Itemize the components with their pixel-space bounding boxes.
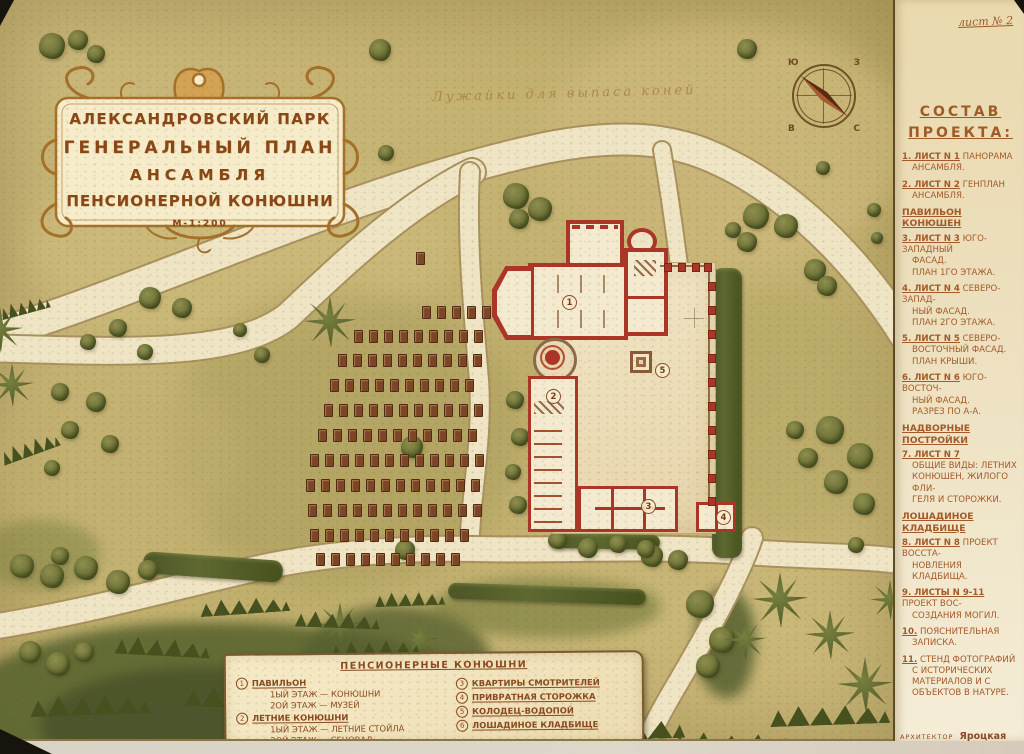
sidebar-item-lead: 9. ЛИСТЫ N 9-11 [902, 588, 984, 598]
grave-marker [429, 330, 438, 343]
sidebar-item-line: 3. ЛИСТ N 3 ЮГО-ЗАПАДНЫЙ [902, 234, 1020, 257]
tree [106, 570, 130, 594]
legend-item: 6ЛОШАДИНОЕ КЛАДБИЩЕ [456, 718, 636, 732]
grave-marker [370, 529, 379, 542]
grave-marker [330, 379, 339, 392]
grave-marker [441, 479, 450, 492]
grave-marker [385, 529, 394, 542]
grave-marker [399, 404, 408, 417]
legend-item-label: КВАРТИРЫ СМОТРИТЕЛЕЙ [472, 677, 600, 688]
grave-marker [423, 429, 432, 442]
park-path [0, 548, 893, 628]
sidebar-item-line: 9. ЛИСТЫ N 9-11 ПРОЕКТ ВОС- [902, 588, 1020, 611]
tree [46, 652, 70, 676]
grave-marker [308, 504, 317, 517]
sidebar-item: 3. ЛИСТ N 3 ЮГО-ЗАПАДНЫЙФАСАД.ПЛАН 1ГО Э… [902, 234, 1020, 279]
pavilion-colonnade [536, 275, 620, 293]
grave-marker [306, 479, 315, 492]
dimension-line [694, 308, 695, 328]
legend-item: 4ПРИВРАТНАЯ СТОРОЖКА [456, 690, 636, 704]
grave-marker [361, 553, 370, 566]
compass-rose: Ю З В С [786, 58, 862, 134]
grave-marker [482, 306, 491, 319]
pavilion-central-hall [528, 263, 628, 340]
grave-marker [366, 479, 375, 492]
legend-box: ПЕНСИОНЕРНЫЕ КОНЮШНИ 1ПАВИЛЬОН1ЫЙ ЭТАЖ —… [224, 650, 645, 741]
grave-marker [465, 379, 474, 392]
sidebar-item-line: 6. ЛИСТ N 6 ЮГО-ВОСТОЧ- [902, 373, 1020, 396]
sidebar-item-continuation: ГЕЛЯ И СТОРОЖКИ. [902, 495, 1020, 506]
grave-marker [340, 454, 349, 467]
building-number-marker: 2 [546, 389, 561, 404]
tree [786, 421, 804, 439]
tree [68, 30, 88, 50]
sidebar-item-line: 10. ПОЯСНИТЕЛЬНАЯ [902, 627, 1020, 638]
fence-post [708, 306, 716, 315]
sidebar-item-continuation: КОНЮШЕН, ЖИЛОГО ФЛИ- [902, 472, 1020, 495]
grave-marker [450, 379, 459, 392]
grave-marker [422, 306, 431, 319]
legend-item-label: ПАВИЛЬОН [252, 678, 306, 688]
sidebar-item-continuation: С ИСТОРИЧЕСКИХ [902, 666, 1020, 677]
tree [737, 232, 757, 252]
tree [509, 209, 529, 229]
grave-marker [346, 553, 355, 566]
compass-label-south: Ю [788, 58, 799, 68]
legend-right-column: 3КВАРТИРЫ СМОТРИТЕЛЕЙ4ПРИВРАТНАЯ СТОРОЖК… [456, 676, 636, 734]
sidebar-item-continuation: ПЛАН 2ГО ЭТАЖА. [902, 318, 1020, 329]
fence-post [708, 497, 716, 506]
stall-partitions [534, 419, 562, 523]
fence-post [678, 263, 686, 272]
grave-marker [428, 504, 437, 517]
tree [816, 161, 830, 175]
grave-marker [339, 404, 348, 417]
grave-marker [336, 479, 345, 492]
sidebar-item-continuation: ВОСТОЧНЫЙ ФАСАД. [902, 345, 1020, 356]
legend-left-column: 1ПАВИЛЬОН1ЫЙ ЭТАЖ — КОНЮШНИ2ОЙ ЭТАЖ — МУ… [236, 676, 452, 741]
grave-marker [452, 306, 461, 319]
sidebar-item-lead: 4. ЛИСТ N 4 [902, 284, 960, 294]
grave-marker [340, 529, 349, 542]
title-line-1: АЛЕКСАНДРОВСКИЙ ПАРК [26, 110, 374, 128]
grave-marker [385, 454, 394, 467]
legend-item-label: КОЛОДЕЦ-ВОДОПОЙ [472, 705, 574, 716]
sidebar-item: 5. ЛИСТ N 5 СЕВЕРО-ВОСТОЧНЫЙ ФАСАД.ПЛАН … [902, 334, 1020, 368]
fence-post [708, 450, 716, 459]
grave-marker [413, 354, 422, 367]
title-cartouche: АЛЕКСАНДРОВСКИЙ ПАРК ГЕНЕРАЛЬНЫЙ ПЛАН АН… [26, 56, 374, 266]
grave-marker [474, 330, 483, 343]
sidebar-item-line: 11. СТЕНД ФОТОГРАФИЙ [902, 655, 1020, 666]
legend-item-number: 2 [236, 713, 248, 725]
tree [774, 214, 798, 238]
grave-marker [428, 354, 437, 367]
grave-marker [445, 454, 454, 467]
grave-marker [426, 479, 435, 492]
tree [668, 550, 688, 570]
grave-marker [429, 404, 438, 417]
cartouche-frame [26, 56, 374, 266]
sidebar-item-continuation: НЫЙ ФАСАД. [902, 396, 1020, 407]
grave-marker [384, 404, 393, 417]
grave-marker [331, 553, 340, 566]
sidebar-item: 1. ЛИСТ N 1 ПАНОРАМААНСАМБЛЯ. [902, 152, 1020, 175]
grave-marker [436, 553, 445, 566]
grave-marker [416, 252, 425, 265]
grave-marker [369, 404, 378, 417]
grave-marker [316, 553, 325, 566]
sidebar-item-lead: 10. [902, 627, 917, 637]
legend-item-sub: 2ОЙ ЭТАЖ — МУЗЕЙ [236, 698, 451, 710]
sidebar-item-line: 1. ЛИСТ N 1 ПАНОРАМА [902, 152, 1020, 163]
grave-marker [445, 529, 454, 542]
grave-marker [353, 504, 362, 517]
tree [74, 642, 94, 662]
grave-marker [376, 553, 385, 566]
grave-marker [375, 379, 384, 392]
tree [138, 560, 158, 580]
fence-post [708, 474, 716, 483]
grave-marker [437, 306, 446, 319]
architect-title: АРХИТЕКТОР [900, 733, 953, 741]
grave-marker [444, 404, 453, 417]
grave-marker [451, 553, 460, 566]
sidebar-item-lead: 5. ЛИСТ N 5 [902, 334, 960, 344]
compass-label-west: З [854, 58, 860, 68]
tree [505, 464, 521, 480]
tree [86, 392, 106, 412]
sidebar-item-lead: 3. ЛИСТ N 3 [902, 234, 960, 244]
grave-marker [390, 379, 399, 392]
legend-item-number: 5 [456, 706, 468, 718]
sidebar-item-continuation: ПЛАН КРЫШИ. [902, 357, 1020, 368]
grave-marker [458, 504, 467, 517]
grave-marker [318, 429, 327, 442]
tree [824, 470, 848, 494]
grave-marker [459, 404, 468, 417]
tree [686, 590, 714, 618]
grave-marker [400, 454, 409, 467]
compass-label-north: С [853, 124, 860, 134]
sidebar-item-line: 5. ЛИСТ N 5 СЕВЕРО- [902, 334, 1020, 345]
grave-marker [345, 379, 354, 392]
tree [61, 421, 79, 439]
pavilion-north-wing [566, 220, 624, 267]
fence-post [664, 263, 672, 272]
grave-marker [414, 330, 423, 343]
grave-marker [391, 553, 400, 566]
grave-marker [399, 330, 408, 343]
sidebar-item: 7. ЛИСТ N 7ОБЩИЕ ВИДЫ: ЛЕТНИХКОНЮШЕН, ЖИ… [902, 450, 1020, 506]
legend-item-label: ЛЕТНИЕ КОНЮШНИ [252, 712, 348, 723]
sheet-number: лист № 2 [958, 14, 1014, 29]
sidebar-item-lead: 11. [902, 655, 917, 665]
grave-marker [443, 354, 452, 367]
tree [51, 383, 69, 401]
tree [798, 448, 818, 468]
grave-marker [310, 454, 319, 467]
grave-marker [338, 354, 347, 367]
grave-marker [348, 429, 357, 442]
grave-marker [430, 454, 439, 467]
tree [867, 203, 881, 217]
tree [51, 547, 69, 565]
sidebar-item-continuation: РАЗРЕЗ ПО А-А. [902, 407, 1020, 418]
sidebar-item-continuation: ОБЩИЕ ВИДЫ: ЛЕТНИХ [902, 461, 1020, 472]
grave-marker [411, 479, 420, 492]
photo-background-strip [0, 741, 1024, 754]
grave-marker [400, 529, 409, 542]
legend-item-label: ПРИВРАТНАЯ СТОРОЖКА [472, 691, 596, 702]
grave-marker [415, 454, 424, 467]
staircase-hatch [634, 260, 656, 276]
grave-marker [323, 504, 332, 517]
sidebar-item: 6. ЛИСТ N 6 ЮГО-ВОСТОЧ-НЫЙ ФАСАД.РАЗРЕЗ … [902, 373, 1020, 418]
building-number-marker: 4 [716, 510, 731, 525]
sidebar-item-continuation: НЫЙ ФАСАД. [902, 307, 1020, 318]
grave-marker [324, 404, 333, 417]
tree [511, 428, 529, 446]
fence-post [708, 402, 716, 411]
grave-marker [393, 429, 402, 442]
tree [19, 641, 41, 663]
sidebar-item-list: 1. ЛИСТ N 1 ПАНОРАМААНСАМБЛЯ.2. ЛИСТ N 2… [902, 152, 1020, 705]
fence-post [708, 426, 716, 435]
partition-wall [628, 296, 664, 299]
grave-marker [360, 379, 369, 392]
grave-marker [475, 454, 484, 467]
grave-marker [468, 429, 477, 442]
grave-marker [471, 479, 480, 492]
grave-marker [473, 504, 482, 517]
grave-marker [456, 479, 465, 492]
tree [737, 39, 757, 59]
sidebar-item-continuation: ЗАПИСКА. [902, 638, 1020, 649]
fence-post [704, 263, 712, 272]
grave-marker [351, 479, 360, 492]
tree [44, 460, 60, 476]
grave-marker [384, 330, 393, 343]
grave-marker [363, 429, 372, 442]
grave-marker [370, 454, 379, 467]
tree [816, 416, 844, 444]
grave-marker [405, 379, 414, 392]
sidebar-item: 10. ПОЯСНИТЕЛЬНАЯЗАПИСКА. [902, 627, 1020, 650]
grave-marker [444, 330, 453, 343]
tree [743, 203, 769, 229]
sidebar-item-continuation: АНСАМБЛЯ. [902, 191, 1020, 202]
tree [637, 540, 655, 558]
tree [506, 391, 524, 409]
sidebar-item-line: 7. ЛИСТ N 7 [902, 450, 1020, 461]
legend-item-label: ЛОШАДИНОЕ КЛАДБИЩЕ [472, 719, 598, 730]
tree [10, 554, 34, 578]
tree [80, 334, 96, 350]
grave-marker [354, 404, 363, 417]
grave-marker [421, 553, 430, 566]
well-watering-place [630, 351, 652, 373]
sidebar-item-lead: 8. ЛИСТ N 8 [902, 538, 960, 548]
sidebar-item-line: 8. ЛИСТ N 8 ПРОЕКТ ВОССТА- [902, 538, 1020, 561]
grave-marker [459, 330, 468, 343]
grave-marker [430, 529, 439, 542]
scanned-plan-photo: 12345 [0, 0, 1024, 754]
round-turret-core [545, 350, 560, 365]
sidebar-item: 9. ЛИСТЫ N 9-11 ПРОЕКТ ВОС-СОЗДАНИЯ МОГИ… [902, 588, 1020, 622]
scale-note: М-1:200 [26, 219, 374, 229]
project-contents-sidebar: СОСТАВ ПРОЕКТА: 1. ЛИСТ N 1 ПАНОРАМААНСА… [893, 0, 1024, 741]
grave-marker [396, 479, 405, 492]
sidebar-item-line: 4. ЛИСТ N 4 СЕВЕРО-ЗАПАД- [902, 284, 1020, 307]
legend-item: 5КОЛОДЕЦ-ВОДОПОЙ [456, 704, 636, 718]
grave-marker [414, 404, 423, 417]
compass-label-east: В [788, 124, 795, 134]
grave-marker [406, 553, 415, 566]
grave-marker [467, 306, 476, 319]
grave-marker [474, 404, 483, 417]
building-number-marker: 5 [655, 363, 670, 378]
grave-marker [420, 379, 429, 392]
sidebar-item-continuation: МАТЕРИАЛОВ И С [902, 677, 1020, 688]
grave-marker [398, 354, 407, 367]
grave-marker [408, 429, 417, 442]
grave-marker [383, 354, 392, 367]
fence-post [708, 330, 716, 339]
sidebar-item-lead: 6. ЛИСТ N 6 [902, 373, 960, 383]
tree [109, 319, 127, 337]
tree [578, 538, 598, 558]
legend-item-number: 3 [456, 678, 468, 690]
grave-marker [355, 529, 364, 542]
grave-marker [473, 354, 482, 367]
sidebar-item-lead: 7. ЛИСТ N 7 [902, 450, 960, 460]
sidebar-item-continuation: АНСАМБЛЯ. [902, 163, 1020, 174]
tree [503, 183, 529, 209]
sidebar-item-continuation: СОЗДАНИЯ МОГИЛ. [902, 611, 1020, 622]
grave-marker [355, 454, 364, 467]
grave-marker [368, 354, 377, 367]
fence-post [692, 263, 700, 272]
tree [74, 556, 98, 580]
fence-post [708, 378, 716, 387]
tree [609, 535, 627, 553]
legend-title: ПЕНСИОНЕРНЫЕ КОНЮШНИ [226, 658, 642, 673]
grave-marker [325, 529, 334, 542]
sidebar-item-lead: 1. ЛИСТ N 1 [902, 152, 960, 162]
sidebar-item-continuation: НОВЛЕНИЯ КЛАДБИЩА. [902, 561, 1020, 584]
facade-bays [572, 225, 618, 229]
sidebar-item-continuation: ПЛАН 1ГО ЭТАЖА. [902, 268, 1020, 279]
sidebar-title-line1: СОСТАВ [920, 104, 1002, 120]
fence-post [708, 354, 716, 363]
tree [101, 435, 119, 453]
tree [696, 654, 720, 678]
keepers-quarters [578, 486, 678, 532]
legend-item: 2ЛЕТНИЕ КОНЮШНИ1ЫЙ ЭТАЖ — ЛЕТНИЕ СТОЙЛА2… [236, 711, 451, 741]
tree [172, 298, 192, 318]
grave-marker [368, 504, 377, 517]
sidebar-item-line: 2. ЛИСТ N 2 ГЕНПЛАН [902, 180, 1020, 191]
grave-marker [413, 504, 422, 517]
legend-item: 1ПАВИЛЬОН1ЫЙ ЭТАЖ — КОНЮШНИ2ОЙ ЭТАЖ — МУ… [236, 676, 451, 711]
tree [817, 276, 837, 296]
pavilion-colonnade [536, 310, 620, 328]
grave-marker [398, 504, 407, 517]
grave-marker [381, 479, 390, 492]
grave-marker [369, 330, 378, 343]
grave-marker [460, 529, 469, 542]
grave-marker [310, 529, 319, 542]
tree [853, 493, 875, 515]
building-number-marker: 1 [562, 295, 577, 310]
sidebar-item: 2. ЛИСТ N 2 ГЕНПЛАНАНСАМБЛЯ. [902, 180, 1020, 203]
tree [40, 564, 64, 588]
tree [528, 197, 552, 221]
grave-marker [383, 504, 392, 517]
title-line-4: ПЕНСИОНЕРНОЙ КОНЮШНИ [26, 192, 374, 210]
tree [139, 287, 161, 309]
grave-marker [353, 354, 362, 367]
grave-marker [333, 429, 342, 442]
sidebar-section-heading: ЛОШАДИНОЕ КЛАДБИЩЕ [902, 511, 1020, 534]
grave-marker [415, 529, 424, 542]
sidebar-item: 4. ЛИСТ N 4 СЕВЕРО-ЗАПАД-НЫЙ ФАСАД.ПЛАН … [902, 284, 1020, 329]
tree [233, 323, 247, 337]
building-number-marker: 3 [641, 499, 656, 514]
sidebar-item-continuation: ОБЪЕКТОВ В НАТУРЕ. [902, 688, 1020, 699]
tree [871, 232, 883, 244]
sidebar-item: 8. ЛИСТ N 8 ПРОЕКТ ВОССТА-НОВЛЕНИЯ КЛАДБ… [902, 538, 1020, 583]
map-canvas: 12345 [0, 0, 893, 741]
tree [847, 443, 873, 469]
legend-item-number: 1 [236, 678, 248, 690]
sidebar-title-line2: ПРОЕКТА: [908, 125, 1013, 141]
grave-marker [325, 454, 334, 467]
grave-marker [338, 504, 347, 517]
tree [378, 145, 394, 161]
sidebar-item-lead: 2. ЛИСТ N 2 [902, 180, 960, 190]
sidebar-section-heading: ПАВИЛЬОН КОНЮШЕН [902, 207, 1020, 230]
grave-marker [443, 504, 452, 517]
grave-marker [435, 379, 444, 392]
tree [848, 537, 864, 553]
fence-post [708, 282, 716, 291]
grave-marker [453, 429, 462, 442]
tree [254, 347, 270, 363]
sidebar-section-heading: НАДВОРНЫЕ ПОСТРОЙКИ [902, 423, 1020, 446]
tree [137, 344, 153, 360]
title-line-3: АНСАМБЛЯ [26, 166, 374, 184]
legend-item-number: 4 [456, 692, 468, 704]
sidebar-title: СОСТАВ ПРОЕКТА: [895, 102, 1024, 144]
sidebar-item-continuation: ФАСАД. [902, 256, 1020, 267]
grave-marker [354, 330, 363, 343]
sidebar-item: 11. СТЕНД ФОТОГРАФИЙС ИСТОРИЧЕСКИХМАТЕРИ… [902, 655, 1020, 700]
grave-marker [378, 429, 387, 442]
tree [509, 496, 527, 514]
legend-item: 3КВАРТИРЫ СМОТРИТЕЛЕЙ [456, 676, 636, 690]
legend-item-number: 6 [456, 720, 468, 732]
title-line-2: ГЕНЕРАЛЬНЫЙ ПЛАН [26, 138, 374, 158]
grave-marker [460, 454, 469, 467]
grave-marker [458, 354, 467, 367]
grave-marker [438, 429, 447, 442]
grave-marker [321, 479, 330, 492]
pavilion-east-wing [624, 248, 668, 336]
